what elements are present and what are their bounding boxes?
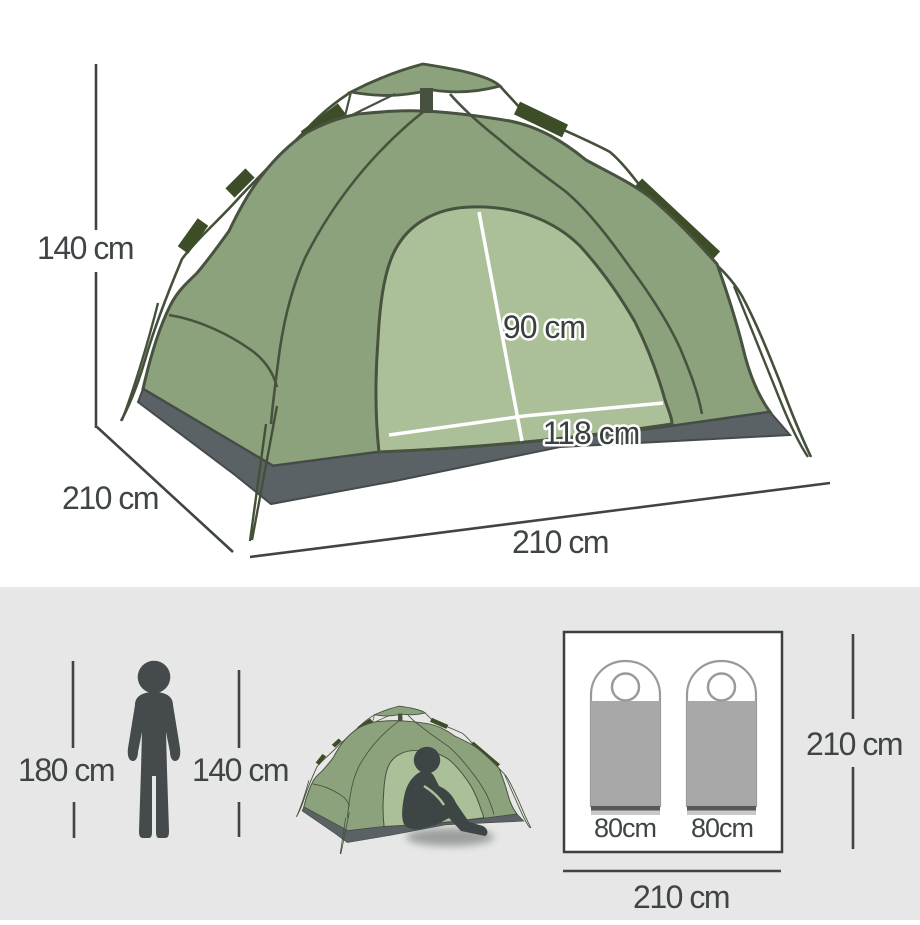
svg-text:118 cm: 118 cm [543,415,640,451]
svg-text:210 cm: 210 cm [633,879,729,915]
svg-text:80cm: 80cm [691,813,753,843]
svg-text:210 cm: 210 cm [512,524,608,560]
svg-text:140 cm: 140 cm [192,752,288,788]
svg-text:210 cm: 210 cm [806,726,902,762]
svg-text:210 cm: 210 cm [62,480,158,516]
svg-text:180 cm: 180 cm [18,752,114,788]
svg-text:90 cm: 90 cm [503,309,585,345]
svg-text:140 cm: 140 cm [37,230,133,266]
svg-text:80cm: 80cm [594,813,656,843]
